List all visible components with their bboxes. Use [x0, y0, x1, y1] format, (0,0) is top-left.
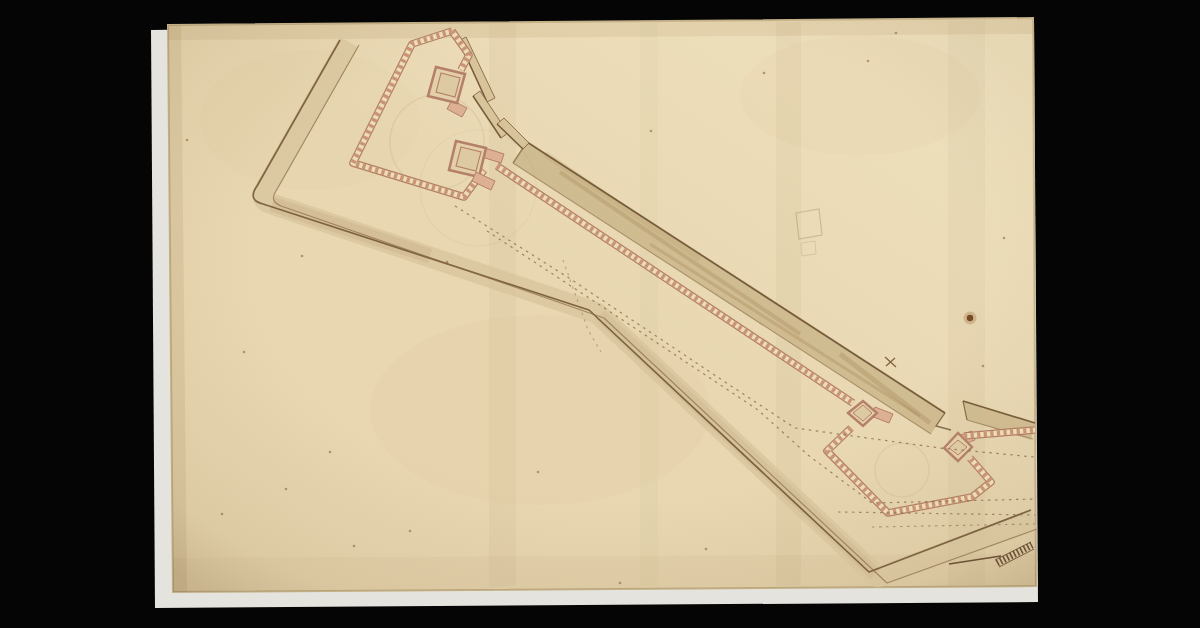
foxing-specks-8 [895, 32, 898, 35]
foxing-specks-14 [650, 130, 653, 133]
upper-fort-tower2-court [456, 147, 481, 171]
fox-spot [967, 315, 973, 321]
foxing-specks-11 [243, 351, 246, 354]
foxing-specks-10 [537, 471, 540, 474]
foxing-specks-6 [763, 72, 766, 75]
foxing-specks-0 [221, 513, 224, 516]
foxing-specks-9 [1003, 237, 1006, 240]
foxing-specks-17 [329, 451, 332, 454]
foxing-specks-7 [867, 60, 870, 63]
foxing-specks-4 [619, 582, 622, 585]
foxing-specks-16 [446, 261, 449, 264]
foxing-specks-2 [353, 545, 356, 548]
fortification-plan-svg [0, 0, 1200, 628]
foxing-specks-1 [285, 488, 288, 491]
upper-fort-tower1-court [436, 73, 460, 97]
foxing-specks-3 [409, 530, 412, 533]
foxing-specks-15 [186, 139, 189, 142]
foxing-specks-13 [301, 255, 304, 258]
foxing-specks-5 [705, 548, 708, 551]
viewer-canvas [0, 0, 1200, 628]
foxing-specks-12 [982, 365, 985, 368]
